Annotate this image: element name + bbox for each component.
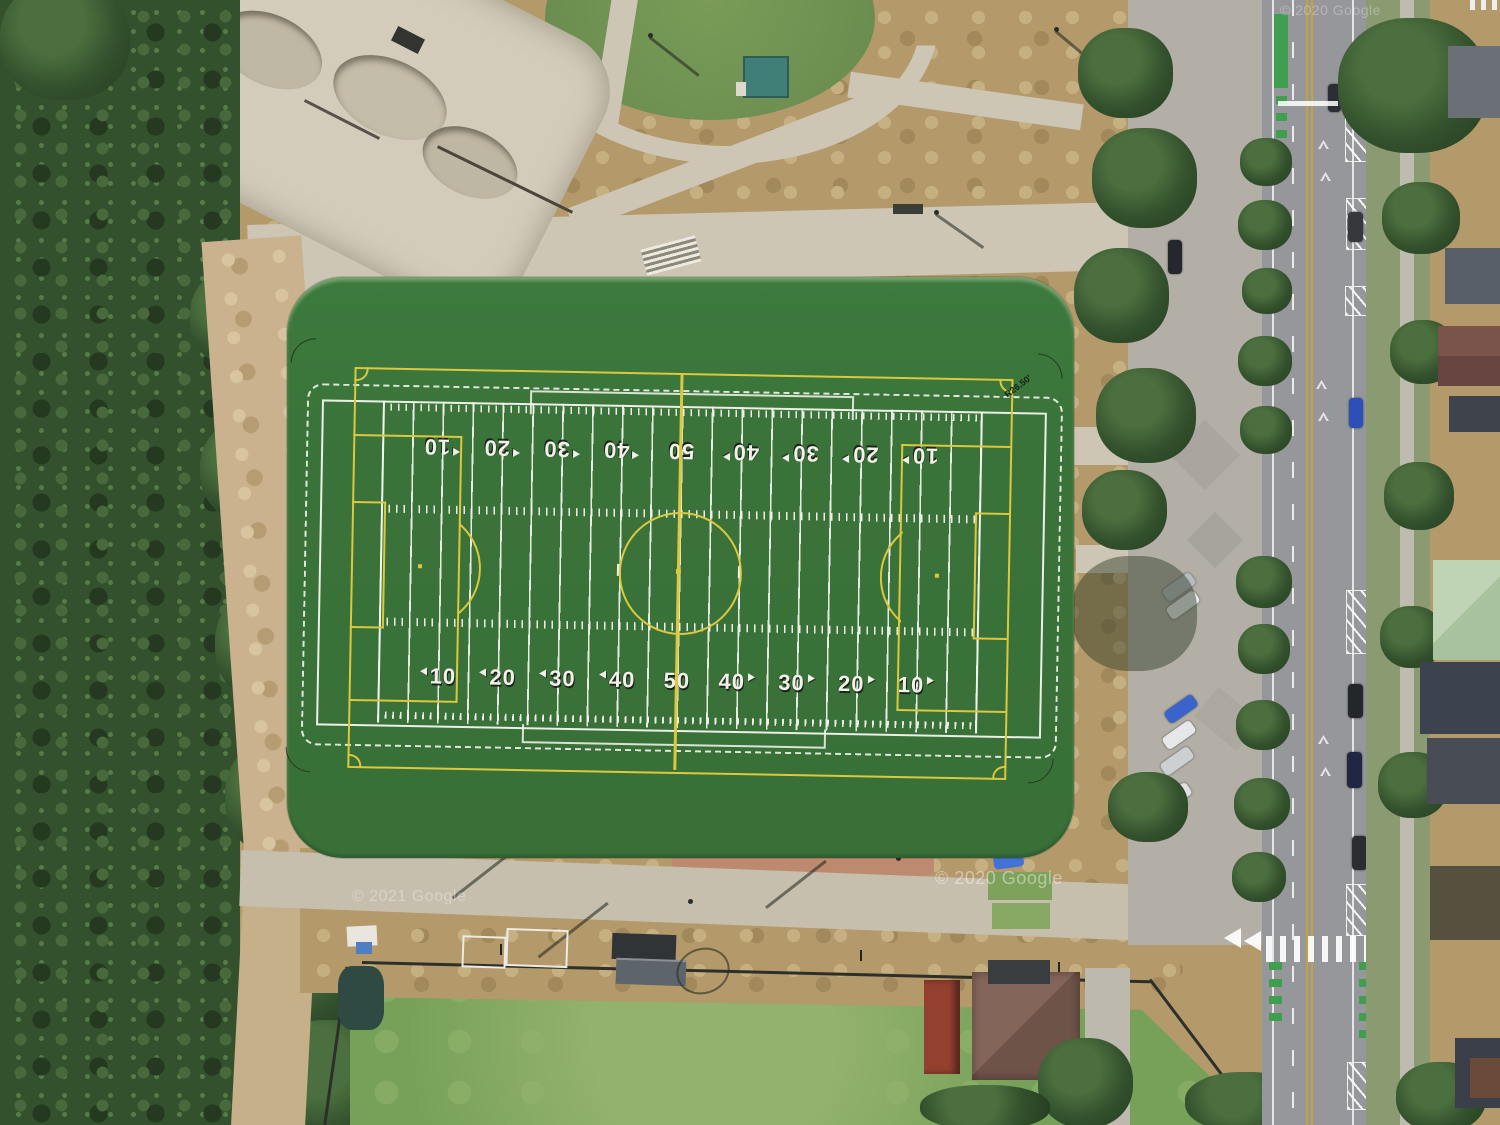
tree-canopy (1092, 128, 1197, 228)
crosswalk-fragment (1470, 0, 1500, 10)
tree-shadow (1072, 556, 1197, 671)
light-pole (688, 899, 693, 904)
dugout-shed-roof (612, 933, 677, 961)
median-bush (1236, 700, 1290, 750)
goal-box-west (350, 501, 386, 629)
aerial-scene: © 2021 Google © 2020 Google © 2020 Googl… (0, 0, 1500, 1125)
tree-canopy (1096, 368, 1196, 463)
house-roof (1430, 866, 1500, 940)
parking-hatch (1346, 884, 1368, 936)
center-spot (676, 569, 681, 574)
corner-arc (337, 754, 361, 778)
tree-canopy (1108, 772, 1188, 842)
park-shed (743, 56, 789, 98)
house-roof-mint (1433, 560, 1500, 660)
house-roof (1449, 396, 1500, 432)
median-bush (1242, 268, 1292, 314)
fence-pole (860, 950, 862, 961)
street-tree (1382, 182, 1460, 254)
tree-canopy (1078, 28, 1173, 118)
red-building (924, 980, 960, 1074)
forest-west (0, 0, 240, 1125)
bench (893, 204, 923, 214)
goal-box-east (973, 512, 1009, 640)
median-bush (1232, 852, 1286, 902)
tree-canopy (1082, 470, 1167, 550)
soccer-goal-frame (505, 928, 568, 968)
mowed-grass-patch (992, 903, 1050, 929)
parked-car (1348, 212, 1363, 242)
street-tree (1384, 462, 1454, 530)
sidewalk-east (1400, 0, 1414, 1125)
house-roof-dark-wing (988, 960, 1050, 984)
parked-car (1352, 836, 1367, 870)
median-bush (1238, 200, 1292, 250)
tree-canopy (920, 1085, 1050, 1125)
blue-equipment (356, 942, 372, 954)
turf-field-overlay: 10 20 30 40 50 40 30 20 10 10 20 30 40 5… (287, 277, 1074, 858)
light-pole (648, 33, 653, 38)
penalty-spot-west (418, 564, 422, 568)
fence-pole (500, 944, 502, 955)
house-roof-brown-bit (1470, 1058, 1500, 1098)
penalty-spot-east (935, 574, 939, 578)
crosswalk-zebra (1266, 936, 1366, 962)
watermark: © 2020 Google (1280, 2, 1381, 18)
parked-car (1168, 240, 1182, 274)
parking-hatch (1346, 590, 1368, 654)
house-roof (1448, 46, 1500, 118)
dark-tarp-structure (338, 966, 384, 1030)
median-bush (1238, 624, 1290, 674)
light-pole (934, 210, 939, 215)
house-roof-maroon (1438, 326, 1500, 386)
bike-box-green (1274, 14, 1288, 88)
stop-bar (1278, 101, 1338, 106)
yield-triangle (1244, 931, 1261, 951)
parked-car (1347, 752, 1362, 788)
tree-canopy (0, 0, 130, 100)
shed-step (736, 82, 746, 96)
watermark: © 2020 Google (935, 868, 1063, 889)
tree-canopy (1038, 1038, 1133, 1125)
planting-strip-east (1366, 0, 1430, 1125)
house-roof (1445, 248, 1500, 304)
watermark: © 2021 Google (352, 888, 466, 906)
parking-hatch (1345, 286, 1367, 316)
parked-car (1349, 398, 1363, 428)
field-markings: 10 20 30 40 50 40 30 20 10 10 20 30 40 5… (282, 270, 1080, 865)
median-bush (1238, 336, 1292, 386)
median-bush (1240, 138, 1292, 186)
median-bush (1236, 556, 1292, 608)
house-roof (1427, 738, 1500, 804)
light-pole (1054, 27, 1059, 32)
median-bush (1234, 778, 1290, 830)
parked-car (1348, 684, 1363, 718)
house-roof (1420, 662, 1500, 734)
tree-canopy (1074, 248, 1169, 343)
bike-lane-dashes (1269, 962, 1282, 1024)
median-bush (1240, 406, 1292, 454)
yield-triangle (1224, 928, 1241, 948)
